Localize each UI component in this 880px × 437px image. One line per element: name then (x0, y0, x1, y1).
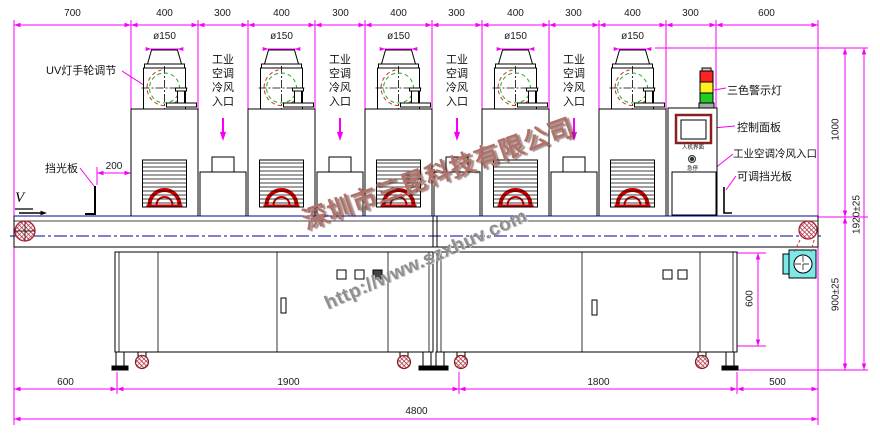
dim-top-400d: 400 (495, 8, 536, 19)
duct-dia-label-1: ø150 (144, 31, 185, 42)
dim-top-400e: 400 (612, 8, 653, 19)
dim-right-900: 900±25 (831, 272, 842, 318)
light-shield-label: 挡光板 (45, 160, 78, 176)
duct-dia-label-5: ø150 (612, 31, 653, 42)
air-inlet-box-1 (200, 157, 246, 217)
dim-top-300d: 300 (553, 8, 594, 19)
duct-dia-label-2: ø150 (261, 31, 302, 42)
tricolor-light-label: 三色警示灯 (727, 82, 782, 98)
dim-shield-200: 200 (96, 161, 132, 172)
dim-top-300c: 300 (436, 8, 477, 19)
machine-line-drawing (0, 0, 880, 437)
cabinet-base-right (437, 252, 737, 352)
light-shield-plate (85, 186, 95, 214)
dim-top-300b: 300 (320, 8, 361, 19)
dim-bottom-600: 600 (45, 377, 86, 388)
uv-lamp-unit-1 (131, 47, 198, 217)
uv-lamp-unit-2 (248, 47, 315, 217)
dim-top-400b: 400 (261, 8, 302, 19)
cad-drawing-canvas: 700 400 300 400 300 400 300 400 300 400 … (0, 0, 880, 437)
dim-top-700: 700 (52, 8, 93, 19)
dim-top-600: 600 (746, 8, 787, 19)
duct-dia-label-3: ø150 (378, 31, 419, 42)
dim-top-300a: 300 (202, 8, 243, 19)
dim-right-1920: 1920±25 (852, 189, 863, 241)
dim-top-400c: 400 (378, 8, 419, 19)
dim-cabinet-600: 600 (745, 276, 756, 322)
duct-dia-label-4: ø150 (495, 31, 536, 42)
uv-lamp-unit-5 (599, 47, 666, 217)
uv-handwheel-label: UV灯手轮调节 (46, 62, 116, 78)
legs-and-casters (112, 352, 738, 370)
dim-right-1000: 1000 (831, 107, 842, 153)
belt-direction-marker: V (15, 190, 24, 207)
ac-inlet-right-label: 工业空调冷风入口 (733, 146, 817, 161)
tricolor-warning-light (699, 68, 714, 108)
estop-label: 急停 (684, 164, 701, 172)
dim-top-300e: 300 (670, 8, 711, 19)
dim-bottom-1900: 1900 (268, 377, 309, 388)
dim-bottom-4800: 4800 (396, 406, 437, 417)
air-inlet-label-1: 工业 空调 冷风 入口 (209, 53, 237, 109)
control-panel-label: 控制面板 (737, 119, 781, 135)
dim-top-400a: 400 (144, 8, 185, 19)
hmi-label: 人机界面 (676, 143, 710, 151)
air-inlet-label-2: 工业 空调 冷风 入口 (326, 53, 354, 109)
adjustable-shield-label: 可调挡光板 (737, 168, 792, 184)
dim-bottom-500: 500 (757, 377, 798, 388)
air-inlet-label-4: 工业 空调 冷风 入口 (560, 53, 588, 109)
air-inlet-label-3: 工业 空调 冷风 入口 (443, 53, 471, 109)
dim-bottom-1800: 1800 (578, 377, 619, 388)
